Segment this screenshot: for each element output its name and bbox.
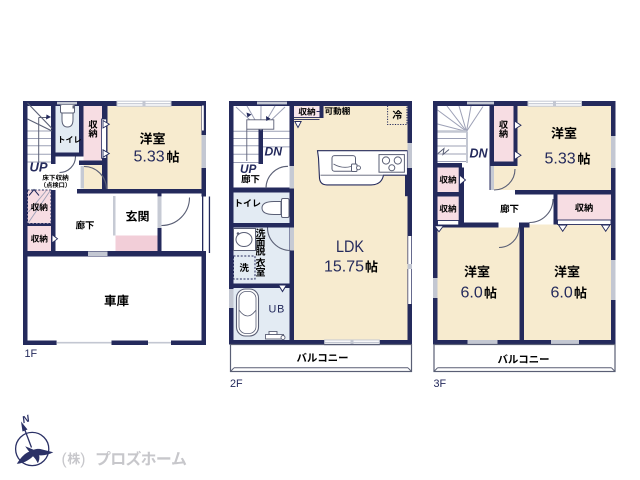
svg-text:2F: 2F (230, 378, 243, 390)
svg-text:DN: DN (470, 147, 489, 161)
svg-text:5.33: 5.33 (134, 148, 165, 165)
svg-text:UB: UB (269, 304, 286, 316)
svg-text:6.0: 6.0 (551, 284, 573, 301)
svg-text:UP: UP (240, 162, 257, 176)
svg-text:5.33: 5.33 (545, 150, 576, 167)
svg-text:(: ( (62, 451, 68, 468)
svg-text:15.75: 15.75 (324, 259, 364, 276)
svg-text:UP: UP (30, 160, 48, 175)
svg-text:6.0: 6.0 (461, 284, 483, 301)
svg-text:3F: 3F (434, 378, 447, 390)
svg-text:DN: DN (265, 145, 284, 159)
svg-text:1F: 1F (25, 348, 38, 360)
svg-text:): ) (80, 451, 85, 468)
svg-text:LDK: LDK (336, 237, 365, 256)
